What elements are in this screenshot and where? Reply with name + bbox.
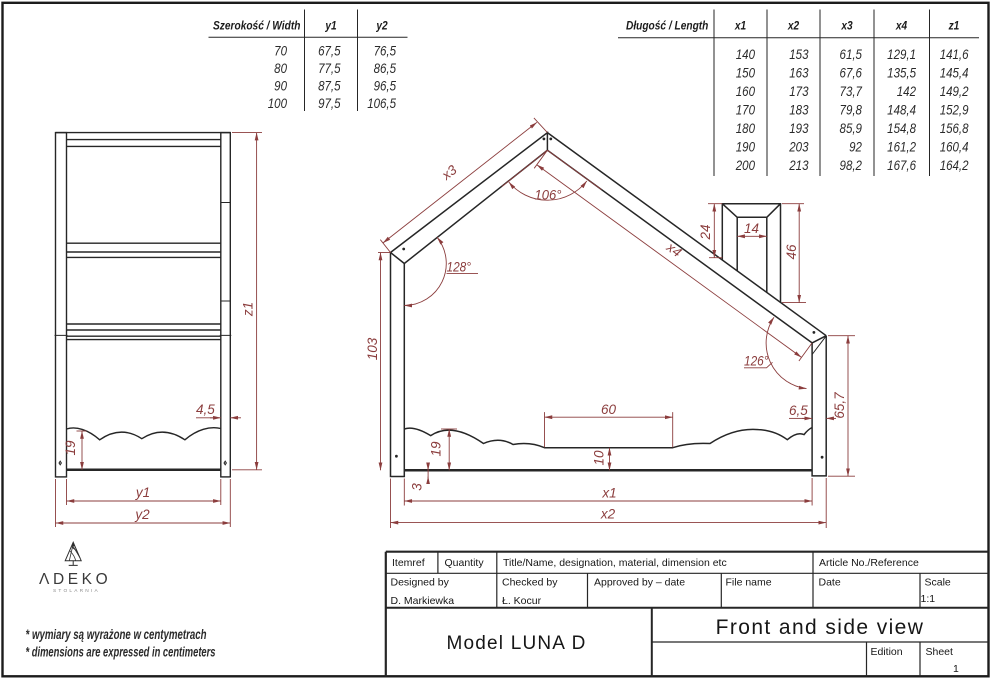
svg-text:86,5: 86,5	[374, 61, 396, 76]
svg-text:180: 180	[736, 121, 755, 136]
svg-text:14: 14	[744, 221, 759, 236]
svg-text:ΛDEKO: ΛDEKO	[39, 571, 111, 588]
svg-text:97,5: 97,5	[318, 96, 340, 111]
svg-text:1:1: 1:1	[921, 593, 936, 605]
svg-text:129,1: 129,1	[887, 47, 916, 62]
svg-text:y1: y1	[324, 20, 336, 33]
svg-text:153: 153	[789, 47, 808, 62]
svg-text:200: 200	[735, 158, 755, 173]
svg-text:File name: File name	[726, 577, 772, 589]
svg-text:103: 103	[365, 337, 380, 360]
svg-text:4,5: 4,5	[196, 402, 215, 417]
svg-text:135,5: 135,5	[887, 66, 916, 81]
svg-text:106,5: 106,5	[367, 96, 396, 111]
svg-text:128°: 128°	[447, 260, 472, 275]
svg-text:10: 10	[592, 450, 607, 466]
svg-text:152,9: 152,9	[940, 103, 969, 118]
svg-text:Itemref: Itemref	[392, 557, 425, 569]
svg-text:149,2: 149,2	[940, 84, 969, 99]
svg-text:61,5: 61,5	[840, 47, 862, 62]
svg-text:140: 140	[736, 47, 755, 62]
svg-text:Approved by – date: Approved by – date	[594, 577, 685, 589]
svg-text:170: 170	[736, 103, 755, 118]
svg-text:24: 24	[698, 224, 713, 240]
svg-text:Scale: Scale	[925, 577, 951, 589]
svg-text:160: 160	[736, 84, 755, 99]
svg-text:100: 100	[268, 96, 287, 111]
svg-text:85,9: 85,9	[840, 121, 862, 136]
svg-text:19: 19	[63, 440, 78, 456]
svg-text:160,4: 160,4	[940, 140, 969, 155]
svg-text:Quantity: Quantity	[445, 557, 485, 569]
svg-text:Designed by: Designed by	[391, 577, 450, 589]
svg-text:x1: x1	[601, 486, 616, 501]
svg-text:106°: 106°	[535, 188, 563, 203]
svg-text:80: 80	[274, 61, 287, 76]
svg-text:x2: x2	[787, 20, 800, 33]
svg-text:65,7: 65,7	[832, 392, 847, 419]
svg-text:67,5: 67,5	[318, 44, 340, 59]
svg-text:STOLARNIA: STOLARNIA	[53, 588, 100, 594]
svg-text:213: 213	[788, 158, 808, 173]
svg-text:60: 60	[601, 402, 617, 417]
svg-text:Ł. Kocur: Ł. Kocur	[502, 595, 542, 607]
svg-text:* dimensions are expressed in: * dimensions are expressed in centimeter…	[26, 645, 216, 660]
svg-text:203: 203	[788, 140, 808, 155]
svg-text:142: 142	[897, 84, 916, 99]
svg-text:x2: x2	[600, 507, 616, 522]
svg-text:Szerokość / Width: Szerokość / Width	[213, 20, 300, 33]
svg-text:Długość / Length: Długość / Length	[626, 20, 708, 33]
svg-text:167,6: 167,6	[887, 158, 916, 173]
svg-text:126°: 126°	[744, 354, 769, 369]
svg-text:Edition: Edition	[871, 646, 903, 658]
svg-text:19: 19	[429, 441, 444, 457]
svg-text:x1: x1	[734, 20, 746, 33]
svg-text:161,2: 161,2	[887, 140, 916, 155]
svg-text:87,5: 87,5	[318, 79, 340, 94]
svg-text:Checked by: Checked by	[502, 577, 558, 589]
svg-text:98,2: 98,2	[840, 158, 862, 173]
svg-text:y2: y2	[134, 507, 150, 522]
svg-text:3: 3	[410, 483, 425, 491]
svg-text:x4: x4	[895, 20, 908, 33]
svg-text:148,4: 148,4	[887, 103, 916, 118]
svg-text:163: 163	[789, 66, 808, 81]
svg-text:* wymiary są wyrażone w centym: * wymiary są wyrażone w centymetrach	[26, 627, 207, 642]
svg-text:79,8: 79,8	[840, 103, 862, 118]
svg-text:96,5: 96,5	[374, 79, 396, 94]
svg-text:77,5: 77,5	[318, 61, 340, 76]
svg-text:190: 190	[736, 140, 755, 155]
svg-text:156,8: 156,8	[940, 121, 969, 136]
svg-text:173: 173	[789, 84, 808, 99]
svg-text:76,5: 76,5	[374, 44, 396, 59]
svg-text:y2: y2	[375, 20, 388, 33]
svg-text:Title/Name, designation, mater: Title/Name, designation, material, dimen…	[503, 557, 727, 569]
svg-text:y1: y1	[135, 485, 150, 500]
svg-text:6,5: 6,5	[789, 403, 808, 418]
svg-text:164,2: 164,2	[940, 158, 969, 173]
svg-text:92: 92	[849, 140, 862, 155]
svg-text:Front and side view: Front and side view	[716, 616, 925, 639]
svg-text:Sheet: Sheet	[926, 646, 954, 658]
svg-text:67,6: 67,6	[840, 66, 862, 81]
svg-text:D. Markiewka: D. Markiewka	[391, 595, 455, 607]
svg-text:183: 183	[789, 103, 808, 118]
svg-text:150: 150	[736, 66, 755, 81]
svg-text:Model LUNA D: Model LUNA D	[446, 633, 586, 654]
svg-text:Article No./Reference: Article No./Reference	[819, 557, 919, 569]
svg-text:154,8: 154,8	[887, 121, 916, 136]
svg-text:x3: x3	[840, 20, 853, 33]
svg-text:145,4: 145,4	[940, 66, 969, 81]
svg-text:46: 46	[784, 244, 799, 260]
svg-text:z1: z1	[948, 20, 960, 33]
svg-text:Date: Date	[819, 577, 841, 589]
svg-text:z1: z1	[241, 302, 256, 317]
svg-text:90: 90	[274, 79, 287, 94]
svg-text:70: 70	[274, 44, 287, 59]
svg-text:141,6: 141,6	[940, 47, 969, 62]
svg-text:73,7: 73,7	[840, 84, 863, 99]
svg-text:193: 193	[789, 121, 808, 136]
svg-text:1: 1	[953, 663, 959, 675]
